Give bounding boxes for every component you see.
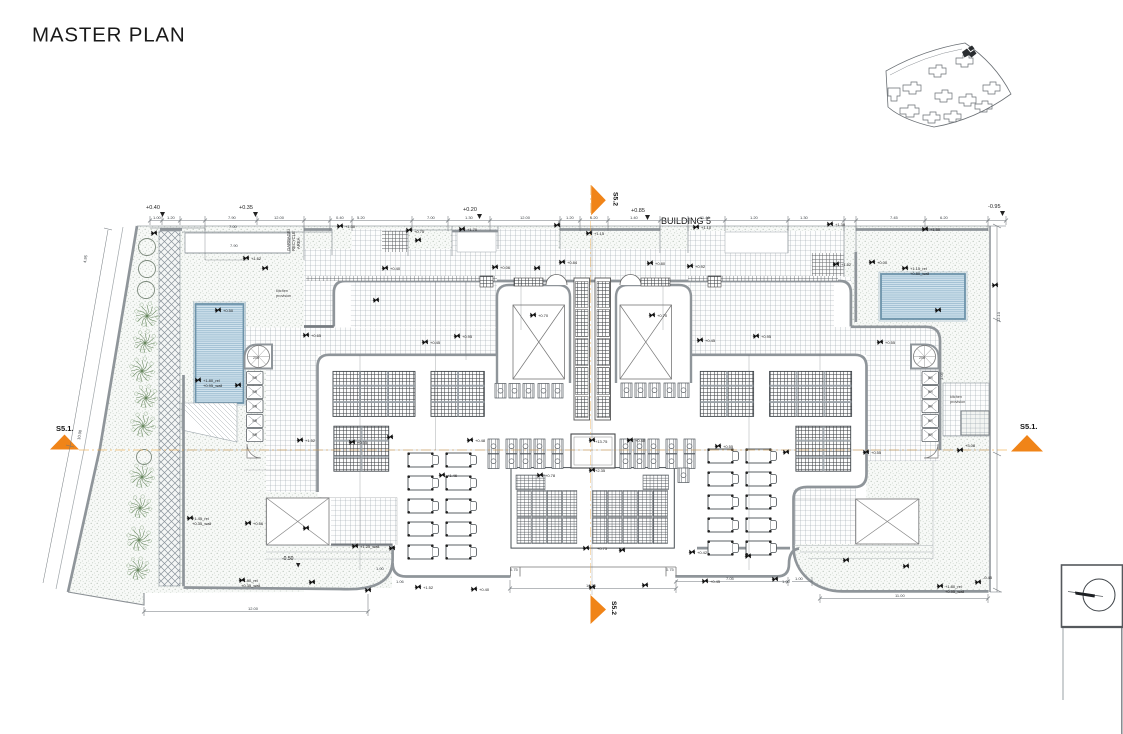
- svg-text:12.10: 12.10: [996, 311, 1001, 322]
- svg-text:provision: provision: [950, 400, 965, 404]
- svg-text:S5.1.: S5.1.: [1020, 422, 1038, 431]
- svg-text:1.20: 1.20: [750, 215, 759, 220]
- svg-text:7.90: 7.90: [230, 243, 239, 248]
- svg-text:12.00: 12.00: [520, 215, 531, 220]
- svg-text:+0.40: +0.40: [390, 266, 401, 271]
- svg-text:kitchen: kitchen: [276, 289, 288, 293]
- svg-text:208: 208: [919, 356, 925, 360]
- svg-text:1.00: 1.00: [376, 566, 385, 571]
- svg-text:+0.70: +0.70: [657, 313, 668, 318]
- svg-text:5.20: 5.20: [357, 215, 366, 220]
- svg-text:AREA: AREA: [296, 237, 301, 249]
- svg-text:+0.75: +0.75: [414, 229, 425, 234]
- svg-text:+0.95: +0.95: [462, 334, 473, 339]
- svg-text:-0.95: -0.95: [988, 204, 1001, 210]
- svg-text:7.45: 7.45: [890, 215, 899, 220]
- svg-text:+0.80: +0.80: [655, 261, 666, 266]
- svg-text:kitchen: kitchen: [950, 395, 962, 399]
- svg-text:+0.35_wall: +0.35_wall: [192, 521, 211, 526]
- svg-text:+0.35_wall: +0.35_wall: [241, 583, 260, 588]
- svg-text:+0.95_wall: +0.95_wall: [945, 589, 964, 594]
- svg-text:1.20: 1.20: [167, 215, 176, 220]
- svg-text:+0.45: +0.45: [430, 340, 441, 345]
- svg-text:+1.25_wall: +1.25_wall: [360, 544, 379, 549]
- svg-text:+1.70: +1.70: [467, 227, 478, 232]
- svg-text:+0.48: +0.48: [475, 438, 486, 443]
- svg-text:+0.55: +0.55: [871, 450, 882, 455]
- svg-text:-0.45: -0.45: [983, 575, 993, 580]
- svg-text:11.00: 11.00: [895, 593, 905, 598]
- svg-text:+0.40: +0.40: [479, 587, 490, 592]
- svg-text:+0.55: +0.55: [723, 444, 734, 449]
- svg-text:7.00: 7.00: [427, 215, 436, 220]
- svg-text:12.00: 12.00: [248, 606, 259, 611]
- svg-text:+1.52: +1.52: [841, 262, 852, 267]
- svg-text:+0.56: +0.56: [253, 521, 264, 526]
- svg-text:+0.95_wall: +0.95_wall: [203, 383, 222, 388]
- svg-text:+0.84: +0.84: [567, 260, 578, 265]
- svg-text:+0.00: +0.00: [877, 260, 888, 265]
- svg-text:6.20: 6.20: [940, 215, 949, 220]
- svg-text:+1.10: +1.10: [701, 225, 712, 230]
- svg-text:+1.30: +1.30: [345, 224, 356, 229]
- svg-text:7.90: 7.90: [228, 215, 237, 220]
- svg-text:+1.30: +1.30: [835, 222, 846, 227]
- svg-text:1.30: 1.30: [800, 215, 809, 220]
- svg-text:+13.75: +13.75: [595, 439, 608, 444]
- svg-text:1.40: 1.40: [630, 215, 639, 220]
- svg-text:provision: provision: [276, 294, 291, 298]
- svg-text:+0.78: +0.78: [545, 473, 556, 478]
- svg-text:+0.48: +0.48: [635, 438, 646, 443]
- svg-text:7.00: 7.00: [229, 224, 238, 229]
- svg-text:+1.46: +1.46: [447, 473, 458, 478]
- svg-text:10.00: 10.00: [76, 429, 83, 440]
- svg-text:1.20: 1.20: [566, 215, 575, 220]
- svg-text:6.20: 6.20: [590, 215, 599, 220]
- svg-text:+1.52: +1.52: [423, 585, 434, 590]
- svg-text:+0.42: +0.42: [697, 550, 708, 555]
- svg-text:S5.2: S5.2: [612, 192, 619, 206]
- svg-text:+0.45: +0.45: [710, 579, 721, 584]
- svg-text:+0.35: +0.35: [239, 205, 253, 211]
- svg-text:1.06: 1.06: [396, 579, 405, 584]
- svg-text:+1.15: +1.15: [594, 231, 605, 236]
- svg-text:MASTER PLAN: MASTER PLAN: [32, 24, 185, 47]
- svg-text:+0.75: +0.75: [597, 546, 608, 551]
- svg-text:+3.08: +3.08: [965, 443, 976, 448]
- svg-text:+0.55: +0.55: [357, 440, 368, 445]
- svg-text:4.95: 4.95: [82, 254, 88, 263]
- svg-text:+0.40: +0.40: [146, 205, 160, 211]
- svg-text:0.75: 0.75: [510, 567, 519, 572]
- svg-text:S5.1.: S5.1.: [56, 424, 74, 433]
- svg-text:+1.52: +1.52: [305, 438, 316, 443]
- svg-text:+0.70: +0.70: [538, 313, 549, 318]
- svg-text:+0.45: +0.45: [705, 338, 716, 343]
- svg-text:+0.65: +0.65: [311, 333, 322, 338]
- svg-text:+0.95: +0.95: [761, 334, 772, 339]
- svg-text:1.05: 1.05: [939, 371, 944, 380]
- svg-text:1.00: 1.00: [782, 579, 791, 584]
- svg-text:+0.06: +0.06: [500, 265, 511, 270]
- svg-text:1.00: 1.00: [795, 576, 804, 581]
- svg-text:+0.50: +0.50: [223, 308, 234, 313]
- svg-text:11.40: 11.40: [700, 215, 710, 220]
- svg-text:12.00: 12.00: [274, 215, 285, 220]
- svg-text:0.40: 0.40: [336, 215, 345, 220]
- svg-text:+2.35: +2.35: [595, 468, 606, 473]
- svg-text:+0.55: +0.55: [885, 340, 896, 345]
- svg-text:0.75: 0.75: [666, 567, 675, 572]
- svg-text:+1.50: +1.50: [930, 227, 941, 232]
- svg-text:S5.2: S5.2: [610, 601, 617, 615]
- svg-text:+0.85: +0.85: [631, 208, 645, 214]
- svg-text:208: 208: [253, 356, 259, 360]
- svg-text:+1.62: +1.62: [251, 256, 262, 261]
- svg-text:1.00: 1.00: [153, 215, 162, 220]
- svg-text:+0.92: +0.92: [695, 264, 706, 269]
- svg-text:1.30: 1.30: [465, 215, 474, 220]
- svg-text:+0.20: +0.20: [463, 207, 477, 213]
- svg-text:+0.80_wall: +0.80_wall: [910, 271, 929, 276]
- svg-text:-0.50: -0.50: [282, 556, 294, 562]
- svg-text:7.05: 7.05: [726, 576, 735, 581]
